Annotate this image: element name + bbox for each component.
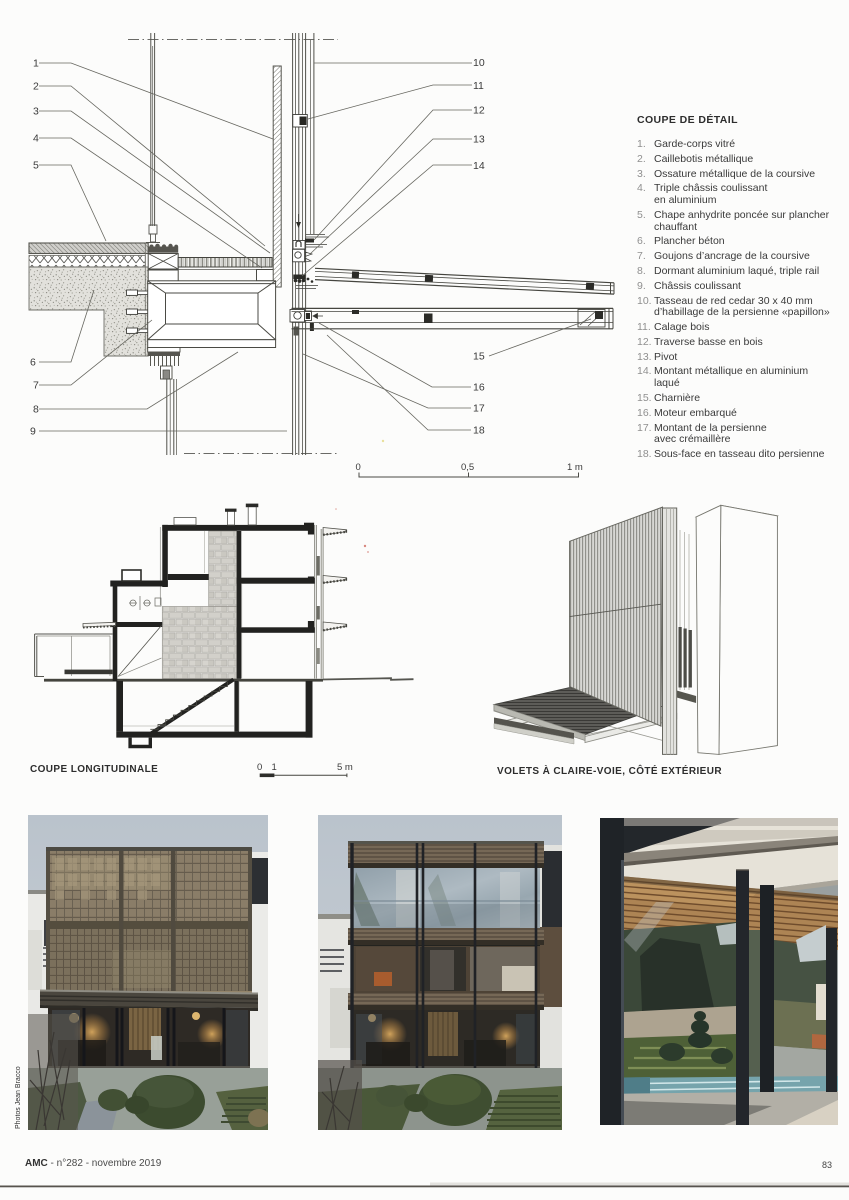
svg-text:7: 7 [33,380,39,392]
svg-text:3: 3 [33,106,39,118]
svg-text:5: 5 [33,160,39,172]
svg-text:11: 11 [473,80,484,92]
svg-text:10: 10 [473,57,485,69]
svg-text:2: 2 [33,81,39,93]
svg-text:8: 8 [33,404,39,416]
svg-text:0,5: 0,5 [461,462,474,473]
svg-text:12: 12 [473,105,485,117]
svg-text:5 m: 5 m [337,762,353,773]
svg-text:0: 0 [356,462,361,473]
svg-text:14: 14 [473,160,485,172]
svg-text:1: 1 [272,762,277,773]
svg-text:1 m: 1 m [567,462,583,473]
svg-text:6: 6 [30,357,36,369]
svg-text:15: 15 [473,351,485,363]
svg-text:13: 13 [473,134,485,146]
svg-text:17: 17 [473,403,485,415]
svg-text:1: 1 [33,58,39,70]
svg-text:9: 9 [30,426,36,438]
svg-text:4: 4 [33,133,39,145]
svg-text:18: 18 [473,425,485,437]
svg-text:0: 0 [257,762,262,773]
svg-text:16: 16 [473,382,485,394]
